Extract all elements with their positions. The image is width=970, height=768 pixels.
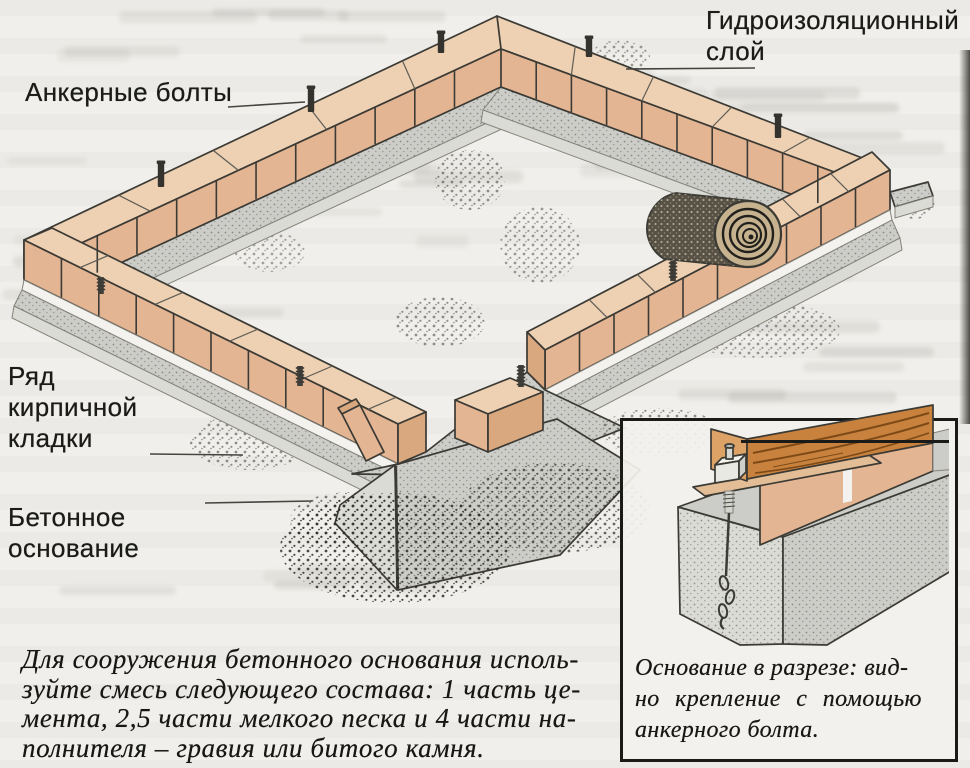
body-paragraph: Для сооружения бетонного основания испол…: [22, 645, 622, 763]
inset-caption: Основание в разрезе: вид- но крепление с…: [635, 653, 949, 746]
label-brick-row: Ряд кирпичной кладки: [8, 361, 137, 454]
waterproofing-roll: [647, 193, 781, 267]
page-scan-edge-shadow: [959, 50, 970, 424]
cross-section-illustration: [623, 399, 949, 657]
label-waterproofing-layer: Гидроизоляционный слой: [706, 5, 959, 67]
scanned-book-page: Гидроизоляционный слой Анкерные болты Ря…: [0, 0, 970, 768]
leader-anchor-bolts: [228, 102, 305, 107]
leader-waterproofing: [626, 68, 755, 69]
label-anchor-bolts: Анкерные болты: [25, 77, 232, 108]
leader-concrete-base: [205, 501, 312, 503]
leader-brick-row: [150, 454, 243, 455]
label-concrete-base: Бетонное основание: [8, 502, 139, 564]
cross-section-inset-box: Основание в разрезе: вид- но крепление с…: [620, 418, 958, 762]
